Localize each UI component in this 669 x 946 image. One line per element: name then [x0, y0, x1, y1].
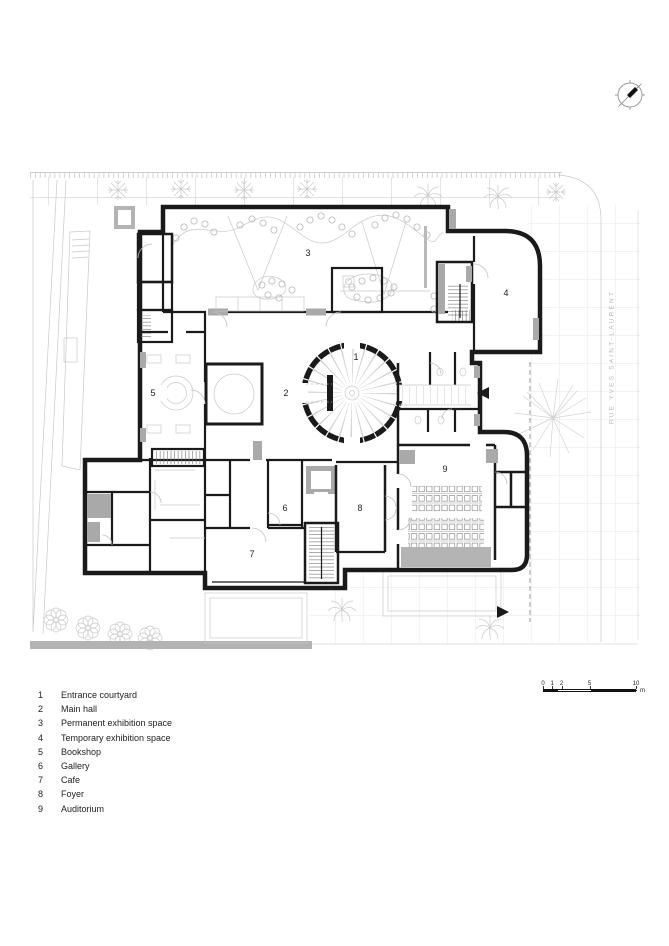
legend-item-label: Auditorium	[61, 804, 104, 814]
room-label-6: 6	[282, 503, 287, 513]
paving-grid-right	[528, 205, 640, 642]
stair-icon	[141, 315, 151, 339]
legend-item-label: Temporary exhibition space	[61, 733, 171, 743]
room-label-9: 9	[442, 464, 447, 474]
legend-item-number: 9	[38, 804, 61, 814]
auditorium-seats	[408, 518, 484, 550]
bush-icon	[44, 608, 68, 632]
legend: 1 Entrance courtyard 2 Main hall 3 Perma…	[38, 690, 172, 818]
legend-item: 7 Cafe	[38, 775, 172, 789]
central-stair	[305, 523, 338, 583]
legend-item: 1 Entrance courtyard	[38, 690, 172, 704]
legend-item-number: 4	[38, 733, 61, 743]
tree-icon	[546, 182, 566, 202]
stage	[401, 547, 491, 567]
legend-item-number: 7	[38, 775, 61, 785]
room-label-2: 2	[283, 388, 288, 398]
legend-item: 4 Temporary exhibition space	[38, 733, 172, 747]
floor-plan-page: 1 2 3 4 5 6 7 8 9 RUE YVES SAINT-LAURENT…	[0, 0, 669, 946]
scale-bar-rule	[543, 689, 636, 693]
legend-item-label: Bookshop	[61, 747, 101, 757]
kiosk	[114, 206, 135, 229]
legend-item-label: Gallery	[61, 761, 90, 771]
fountain-wall	[327, 375, 333, 411]
room-label-7: 7	[249, 549, 254, 559]
north-arrow-icon	[615, 80, 645, 110]
legend-item: 6 Gallery	[38, 761, 172, 775]
legend-item: 8 Foyer	[38, 789, 172, 803]
legend-item: 9 Auditorium	[38, 804, 172, 818]
auditorium-seats	[412, 486, 482, 512]
tree-icon	[108, 180, 128, 200]
legend-item-label: Cafe	[61, 775, 80, 785]
legend-item-number: 3	[38, 718, 61, 728]
building	[85, 207, 540, 618]
legend-item-number: 8	[38, 789, 61, 799]
room-label-1: 1	[353, 352, 358, 362]
legend-item: 3 Permanent exhibition space	[38, 718, 172, 732]
room-label-5: 5	[150, 388, 155, 398]
tree-icon	[171, 179, 191, 199]
legend-item-number: 5	[38, 747, 61, 757]
room-label-8: 8	[357, 503, 362, 513]
legend-item-number: 1	[38, 690, 61, 700]
legend-item-number: 2	[38, 704, 61, 714]
stair-icon	[452, 310, 470, 321]
walkway	[399, 386, 471, 404]
legend-item-label: Main hall	[61, 704, 97, 714]
scale-unit-label: m	[640, 688, 645, 694]
terrace-south-west	[205, 593, 307, 643]
legend-item-label: Permanent exhibition space	[61, 718, 172, 728]
tree-icon	[234, 180, 254, 200]
legend-item-label: Foyer	[61, 789, 84, 799]
site-boundary-left	[33, 180, 66, 634]
legend-item-number: 6	[38, 761, 61, 771]
legend-item: 5 Bookshop	[38, 747, 172, 761]
bush-icon	[76, 616, 100, 640]
street-name-label: RUE YVES SAINT-LAURENT	[609, 290, 616, 424]
stair-icon	[154, 451, 202, 464]
legend-item: 2 Main hall	[38, 704, 172, 718]
room-label-3: 3	[305, 248, 310, 258]
room-label-4: 4	[503, 288, 508, 298]
paving-grid-top	[30, 177, 560, 205]
tree-icon	[297, 179, 317, 199]
sidewalk-edge	[30, 641, 312, 649]
scale-bar: 0 1 2 5 10 m	[541, 681, 651, 697]
legend-item-label: Entrance courtyard	[61, 690, 137, 700]
ramp	[62, 231, 90, 470]
elevator-shaft	[306, 466, 336, 495]
skylight-square	[206, 364, 262, 424]
